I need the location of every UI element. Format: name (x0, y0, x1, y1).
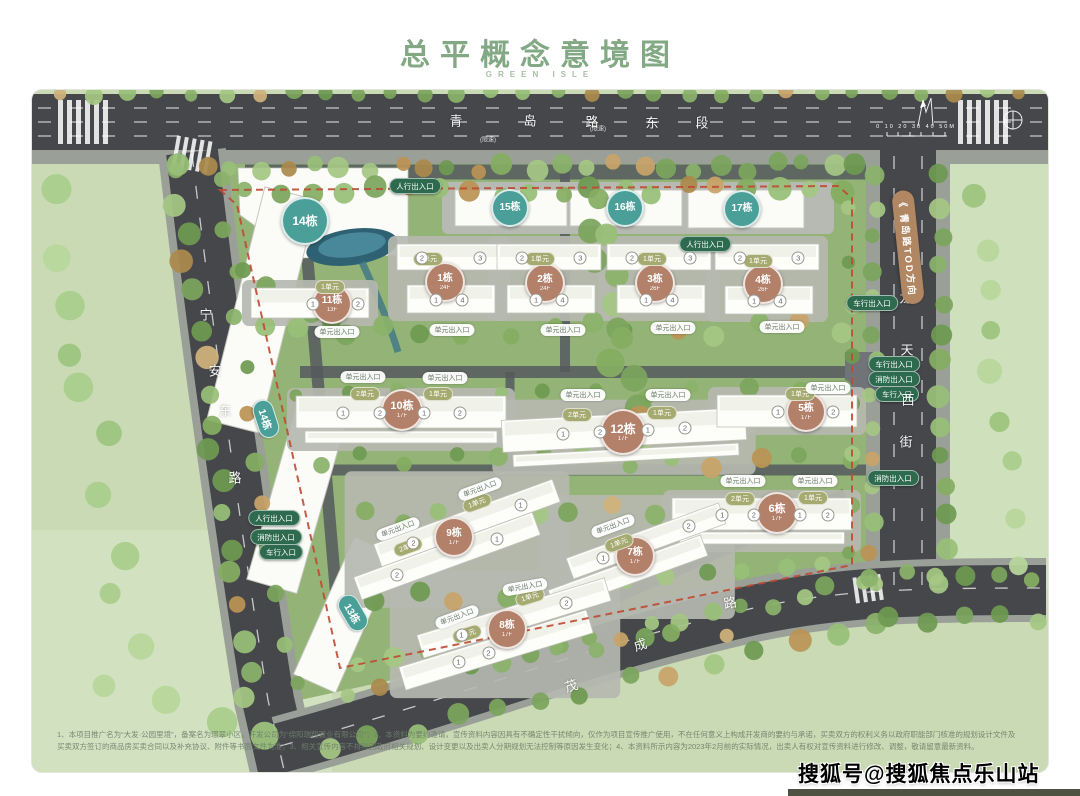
page-title: 总平概念意境图 (0, 30, 1080, 74)
site-plan-canvas (32, 90, 1048, 772)
page: { "page": { "title": "总平概念意境图", "subtitl… (0, 0, 1080, 796)
watermark: 搜狐号@搜狐焦点乐山站 (798, 758, 1039, 788)
disclaimer-text: 1、本项目推广名为“大发·公园里境”，备案名为璟翠小区，开发公司为“绵阳瑞翔置业… (57, 729, 1020, 752)
page-subtitle: GREEN ISLE (0, 70, 1080, 79)
site-plan-map (32, 90, 1048, 772)
watermark-underline (788, 789, 1080, 796)
